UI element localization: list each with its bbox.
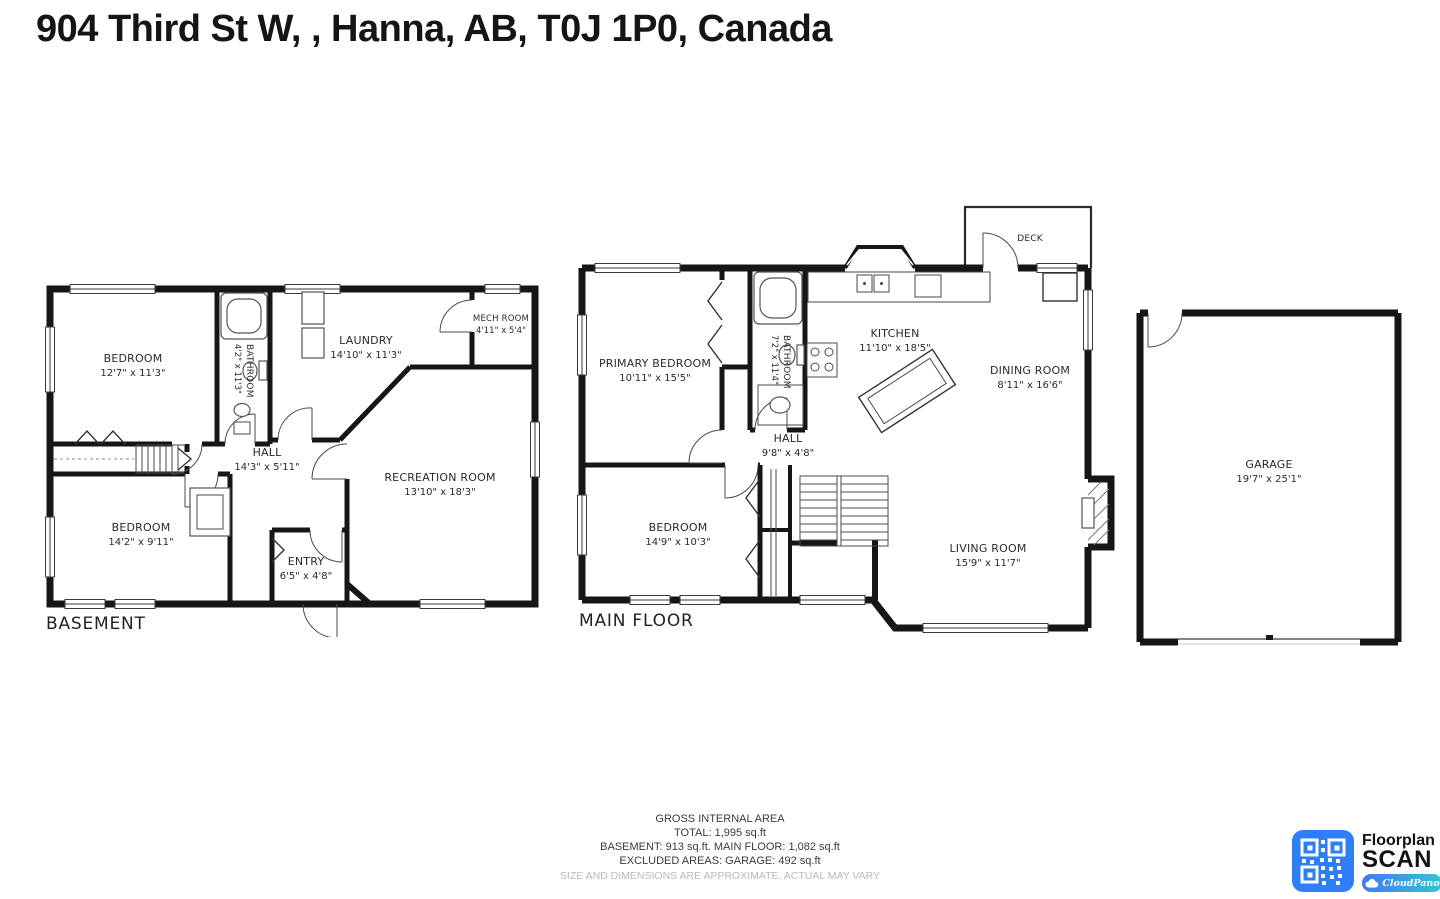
floorplan-page: 904 Third St W, , Hanna, AB, T0J 1P0, Ca… [0, 0, 1440, 899]
room-label-basement-bathroom: BATHROOM [244, 344, 254, 398]
room-label-basement-bedroom2: BEDROOM [112, 521, 171, 534]
main-plan-svg: DECK PRIMARY BEDROOM 10'11" x 15'5" BATH… [575, 195, 1120, 645]
room-label-living: LIVING ROOM [949, 542, 1026, 555]
room-label-garage: GARAGE [1245, 458, 1292, 471]
main-doors [689, 233, 1018, 578]
dining-table [859, 349, 956, 432]
gross-area-heading: GROSS INTERNAL AREA [0, 812, 1440, 826]
room-label-basement-bedroom1: BEDROOM [104, 352, 163, 365]
main-fireplace [1082, 482, 1109, 545]
main-floorplan: DECK PRIMARY BEDROOM 10'11" x 15'5" BATH… [575, 195, 1120, 645]
room-label-basement-hall: HALL [253, 446, 283, 459]
room-dims-main-bedroom: 14'9" x 10'3" [645, 537, 710, 548]
excluded-areas: EXCLUDED AREAS: GARAGE: 492 sq.ft [0, 854, 1440, 868]
room-label-primary-bedroom: PRIMARY BEDROOM [599, 357, 711, 370]
total-area: TOTAL: 1,995 sq.ft [0, 826, 1440, 840]
basement-plan-svg: BEDROOM 12'7" x 11'3" BATHROOM 4'2" x 11… [40, 282, 540, 637]
logo-brand-scan: SCAN [1362, 849, 1440, 871]
garage-door [1148, 313, 1182, 347]
basement-stairs [54, 445, 191, 473]
cloudpano-badge: CloudPano [1362, 874, 1440, 892]
room-dims-main-hall: 9'8" x 4'8" [762, 448, 814, 459]
room-dims-basement-mech: 4'11" x 5'4" [476, 326, 526, 336]
qr-code-icon [1292, 830, 1354, 892]
room-dims-basement-bathroom: 4'2" x 11'3" [232, 344, 242, 394]
room-dims-basement-bedroom1: 12'7" x 11'3" [100, 368, 165, 379]
room-label-main-hall: HALL [774, 432, 804, 445]
basement-floor-label: BASEMENT [46, 614, 146, 634]
room-label-basement-entry: ENTRY [288, 555, 325, 568]
garage-floorplan: GARAGE 19'7" x 25'1" [1130, 305, 1410, 650]
room-dims-garage: 19'7" x 25'1" [1236, 474, 1301, 485]
room-dims-basement-hall: 14'3" x 5'11" [234, 462, 299, 473]
room-dims-basement-recreation: 13'10" x 18'3" [404, 487, 476, 498]
room-label-basement-recreation: RECREATION ROOM [384, 471, 495, 484]
floor-areas: BASEMENT: 913 sq.ft. MAIN FLOOR: 1,082 s… [0, 840, 1440, 854]
room-dims-dining: 8'11" x 16'6" [997, 380, 1062, 391]
cloudpano-label: CloudPano [1382, 878, 1439, 889]
main-floor-label: MAIN FLOOR [579, 611, 694, 631]
room-dims-kitchen: 11'10" x 18'5" [859, 343, 931, 354]
basement-floorplan: BEDROOM 12'7" x 11'3" BATHROOM 4'2" x 11… [40, 282, 540, 637]
main-interior-walls [582, 268, 875, 600]
room-label-deck: DECK [1017, 234, 1044, 244]
room-label-dining: DINING ROOM [990, 364, 1070, 377]
room-dims-basement-laundry: 14'10" x 11'3" [330, 350, 402, 361]
room-label-basement-laundry: LAUNDRY [339, 334, 393, 347]
room-dims-basement-bedroom2: 14'2" x 9'11" [108, 537, 173, 548]
room-dims-main-bathroom: 7'2" x 11'4" [769, 335, 779, 385]
garage-plan-svg: GARAGE 19'7" x 25'1" [1130, 305, 1410, 650]
cloud-icon [1364, 878, 1379, 888]
room-dims-living: 15'9" x 11'7" [955, 558, 1020, 569]
main-windows [578, 264, 1093, 633]
room-dims-primary-bedroom: 10'11" x 15'5" [619, 373, 691, 384]
disclaimer: SIZE AND DIMENSIONS ARE APPROXIMATE, ACT… [0, 869, 1440, 883]
floorplan-scan-logo: Floorplan SCAN CloudPano [1292, 830, 1440, 892]
main-room-labels: DECK PRIMARY BEDROOM 10'11" x 15'5" BATH… [579, 234, 1070, 631]
room-label-basement-mech: MECH ROOM [473, 314, 529, 324]
room-dims-basement-entry: 6'5" x 4'8" [280, 571, 332, 582]
room-label-kitchen: KITCHEN [870, 327, 919, 340]
main-exterior-walls [582, 247, 1111, 628]
basement-fixtures [190, 292, 324, 536]
room-label-main-bedroom: BEDROOM [649, 521, 708, 534]
room-label-main-bathroom: BATHROOM [781, 335, 791, 389]
main-stairs [800, 476, 888, 546]
page-title: 904 Third St W, , Hanna, AB, T0J 1P0, Ca… [36, 8, 832, 51]
garage-room-labels: GARAGE 19'7" x 25'1" [1236, 458, 1301, 485]
area-summary: GROSS INTERNAL AREA TOTAL: 1,995 sq.ft B… [0, 812, 1440, 883]
